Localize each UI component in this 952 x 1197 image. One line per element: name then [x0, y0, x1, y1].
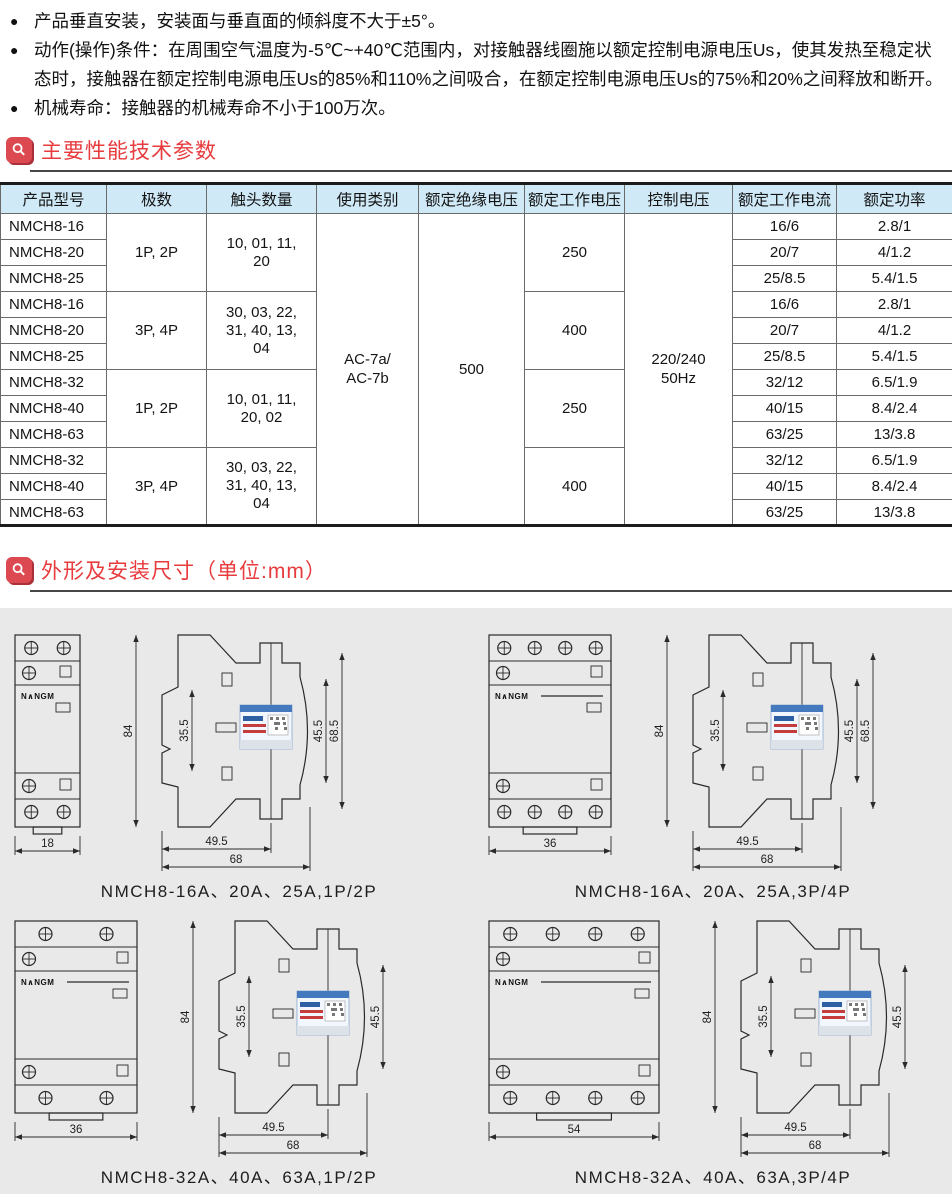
section-divider: [30, 170, 952, 172]
power-cell: 6.5/1.9: [837, 448, 952, 474]
power-cell: 8.4/2.4: [837, 474, 952, 500]
svg-text:54: 54: [568, 1124, 581, 1136]
bullet-dot-icon: ●: [10, 94, 34, 123]
power-cell: 13/3.8: [837, 422, 952, 448]
svg-text:49.5: 49.5: [736, 836, 758, 848]
current-cell: 25/8.5: [733, 344, 837, 370]
current-cell: 63/25: [733, 500, 837, 526]
svg-text:68.5: 68.5: [860, 720, 872, 742]
outline-drawing: N∧NGM188435.545.568.549.568: [7, 623, 471, 875]
figure-caption: NMCH8-16A、20A、25A,1P/2P: [101, 877, 377, 902]
model-cell: NMCH8-40: [1, 474, 107, 500]
svg-text:45.5: 45.5: [892, 1006, 904, 1028]
svg-text:45.5: 45.5: [370, 1006, 382, 1028]
bullet-dot-icon: ●: [10, 7, 34, 36]
svg-text:84: 84: [123, 724, 135, 737]
contacts-cell: 30, 03, 22, 31, 40, 13, 04: [207, 448, 317, 526]
col-header: 产品型号: [1, 184, 107, 214]
contacts-cell: 10, 01, 11, 20: [207, 214, 317, 292]
svg-text:68: 68: [761, 854, 774, 866]
model-cell: NMCH8-16: [1, 214, 107, 240]
current-cell: 40/15: [733, 474, 837, 500]
poles-cell: 3P, 4P: [107, 448, 207, 526]
power-cell: 5.4/1.5: [837, 266, 952, 292]
svg-text:45.5: 45.5: [844, 720, 856, 742]
bullet-item: ● 动作(操作)条件：在周围空气温度为-5℃~+40℃范围内，对接触器线圈施以额…: [10, 36, 946, 94]
col-header: 额定工作电压: [525, 184, 625, 214]
col-header: 控制电压: [625, 184, 733, 214]
power-cell: 6.5/1.9: [837, 370, 952, 396]
power-cell: 4/1.2: [837, 240, 952, 266]
working-voltage-cell: 400: [525, 292, 625, 370]
current-cell: 16/6: [733, 292, 837, 318]
section-header-dimensions: 外形及安装尺寸（单位:mm）: [6, 555, 952, 585]
category-cell: AC-7a/ AC-7b: [317, 214, 419, 526]
model-cell: NMCH8-32: [1, 448, 107, 474]
figure-16a-1p2p: N∧NGM188435.545.568.549.568 NMCH8-16A、20…: [2, 620, 476, 902]
power-cell: 5.4/1.5: [837, 344, 952, 370]
current-cell: 16/6: [733, 214, 837, 240]
contacts-cell: 30, 03, 22, 31, 40, 13, 04: [207, 292, 317, 370]
col-header: 触头数量: [207, 184, 317, 214]
model-cell: NMCH8-20: [1, 318, 107, 344]
svg-text:84: 84: [180, 1010, 192, 1023]
bullet-text: 产品垂直安装，安装面与垂直面的倾斜度不大于±5°。: [34, 7, 946, 36]
col-header: 额定工作电流: [733, 184, 837, 214]
model-cell: NMCH8-25: [1, 344, 107, 370]
col-header: 额定功率: [837, 184, 952, 214]
svg-text:84: 84: [654, 724, 666, 737]
power-cell: 4/1.2: [837, 318, 952, 344]
figure-caption: NMCH8-32A、40A、63A,3P/4P: [575, 1163, 851, 1188]
insulation-voltage-cell: 500: [419, 214, 525, 526]
col-header: 极数: [107, 184, 207, 214]
section-divider: [30, 590, 952, 592]
figure-16a-3p4p: N∧NGM368435.545.568.549.568 NMCH8-16A、20…: [476, 620, 950, 902]
svg-text:N∧NGM: N∧NGM: [21, 692, 54, 701]
model-cell: NMCH8-25: [1, 266, 107, 292]
model-cell: NMCH8-63: [1, 422, 107, 448]
table-header-row: 产品型号 极数 触头数量 使用类别 额定绝缘电压 额定工作电压 控制电压 额定工…: [1, 184, 952, 214]
working-voltage-cell: 250: [525, 370, 625, 448]
svg-text:35.5: 35.5: [236, 1005, 248, 1027]
figure-32a-3p4p: N∧NGM548435.545.549.568 NMCH8-32A、40A、63…: [476, 906, 950, 1188]
power-cell: 2.8/1: [837, 214, 952, 240]
svg-text:36: 36: [544, 838, 557, 850]
control-voltage-cell: 220/240 50Hz: [625, 214, 733, 526]
section-title-performance: 主要性能技术参数: [41, 135, 217, 165]
bullet-dot-icon: ●: [10, 36, 34, 94]
poles-cell: 1P, 2P: [107, 214, 207, 292]
poles-cell: 3P, 4P: [107, 292, 207, 370]
svg-text:N∧NGM: N∧NGM: [21, 978, 54, 987]
magnifier-icon: [6, 137, 32, 163]
current-cell: 40/15: [733, 396, 837, 422]
svg-text:68: 68: [809, 1140, 822, 1152]
outline-drawing: N∧NGM368435.545.568.549.568: [481, 623, 945, 875]
power-cell: 8.4/2.4: [837, 396, 952, 422]
bullet-text: 机械寿命：接触器的机械寿命不小于100万次。: [34, 94, 946, 123]
current-cell: 32/12: [733, 448, 837, 474]
model-cell: NMCH8-20: [1, 240, 107, 266]
contacts-cell: 10, 01, 11, 20, 02: [207, 370, 317, 448]
svg-text:35.5: 35.5: [710, 719, 722, 741]
svg-text:35.5: 35.5: [179, 719, 191, 741]
figure-caption: NMCH8-16A、20A、25A,3P/4P: [575, 877, 851, 902]
current-cell: 25/8.5: [733, 266, 837, 292]
svg-text:36: 36: [70, 1124, 83, 1136]
svg-text:84: 84: [702, 1010, 714, 1023]
model-cell: NMCH8-16: [1, 292, 107, 318]
outline-drawing: N∧NGM548435.545.549.568: [481, 909, 945, 1161]
model-cell: NMCH8-32: [1, 370, 107, 396]
intro-notes: ● 产品垂直安装，安装面与垂直面的倾斜度不大于±5°。 ● 动作(操作)条件：在…: [0, 0, 952, 123]
svg-text:68.5: 68.5: [329, 720, 341, 742]
power-cell: 2.8/1: [837, 292, 952, 318]
svg-text:35.5: 35.5: [758, 1005, 770, 1027]
current-cell: 63/25: [733, 422, 837, 448]
figure-caption: NMCH8-32A、40A、63A,1P/2P: [101, 1163, 377, 1188]
power-cell: 13/3.8: [837, 500, 952, 526]
svg-text:68: 68: [287, 1140, 300, 1152]
bullet-item: ● 机械寿命：接触器的机械寿命不小于100万次。: [10, 94, 946, 123]
svg-text:68: 68: [230, 854, 243, 866]
svg-text:49.5: 49.5: [262, 1122, 284, 1134]
svg-text:18: 18: [41, 838, 54, 850]
current-cell: 20/7: [733, 240, 837, 266]
working-voltage-cell: 400: [525, 448, 625, 526]
model-cell: NMCH8-40: [1, 396, 107, 422]
figure-32a-1p2p: N∧NGM368435.545.549.568 NMCH8-32A、40A、63…: [2, 906, 476, 1188]
svg-text:45.5: 45.5: [313, 720, 325, 742]
col-header: 额定绝缘电压: [419, 184, 525, 214]
magnifier-icon: [6, 557, 32, 583]
section-title-dimensions: 外形及安装尺寸（单位:mm）: [41, 555, 327, 585]
current-cell: 32/12: [733, 370, 837, 396]
svg-text:49.5: 49.5: [784, 1122, 806, 1134]
svg-text:N∧NGM: N∧NGM: [495, 692, 528, 701]
spec-table: 产品型号 极数 触头数量 使用类别 额定绝缘电压 额定工作电压 控制电压 额定工…: [0, 182, 952, 527]
svg-text:N∧NGM: N∧NGM: [495, 978, 528, 987]
poles-cell: 1P, 2P: [107, 370, 207, 448]
bullet-text: 动作(操作)条件：在周围空气温度为-5℃~+40℃范围内，对接触器线圈施以额定控…: [34, 36, 946, 94]
current-cell: 20/7: [733, 318, 837, 344]
col-header: 使用类别: [317, 184, 419, 214]
svg-text:49.5: 49.5: [205, 836, 227, 848]
table-row: NMCH8-16 1P, 2P 10, 01, 11, 20 AC-7a/ AC…: [1, 214, 952, 240]
section-header-performance: 主要性能技术参数: [6, 135, 952, 165]
model-cell: NMCH8-63: [1, 500, 107, 526]
bullet-item: ● 产品垂直安装，安装面与垂直面的倾斜度不大于±5°。: [10, 7, 946, 36]
outline-drawing: N∧NGM368435.545.549.568: [7, 909, 471, 1161]
working-voltage-cell: 250: [525, 214, 625, 292]
dimension-drawings-panel: N∧NGM188435.545.568.549.568 NMCH8-16A、20…: [0, 608, 952, 1194]
